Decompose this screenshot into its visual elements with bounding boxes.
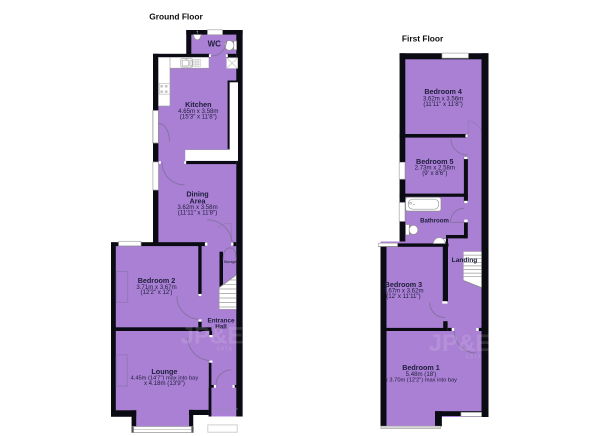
svg-text:ESTA: ESTA [217,347,233,353]
svg-text:JP&E: JP&E [181,323,244,350]
svg-text:JP&E: JP&E [429,330,492,357]
svg-text:(11'11" x 11'8"): (11'11" x 11'8") [423,101,463,108]
svg-text:Storage: Storage [224,260,237,264]
svg-text:(11'11" x 11'8"): (11'11" x 11'8") [178,210,218,217]
svg-text:(15'3" x 11'8"): (15'3" x 11'8") [180,113,217,120]
svg-text:x 4.18m (13'9"): x 4.18m (13'9") [144,380,185,387]
svg-text:(12' x 11'11"): (12' x 11'11") [386,293,420,300]
svg-text:ESTA: ESTA [466,355,482,361]
svg-text:Landing: Landing [452,257,478,264]
svg-text:Bathroom: Bathroom [420,217,449,224]
svg-text:x 3.70m (12'2") max into bay: x 3.70m (12'2") max into bay [385,377,457,383]
svg-text:(12'2" x 12'): (12'2" x 12') [141,289,173,296]
svg-text:WC: WC [208,40,222,49]
svg-text:First Floor: First Floor [402,34,444,44]
svg-text:(9' x 8'6"): (9' x 8'6") [422,170,447,177]
svg-text:Ground Floor: Ground Floor [149,12,203,22]
